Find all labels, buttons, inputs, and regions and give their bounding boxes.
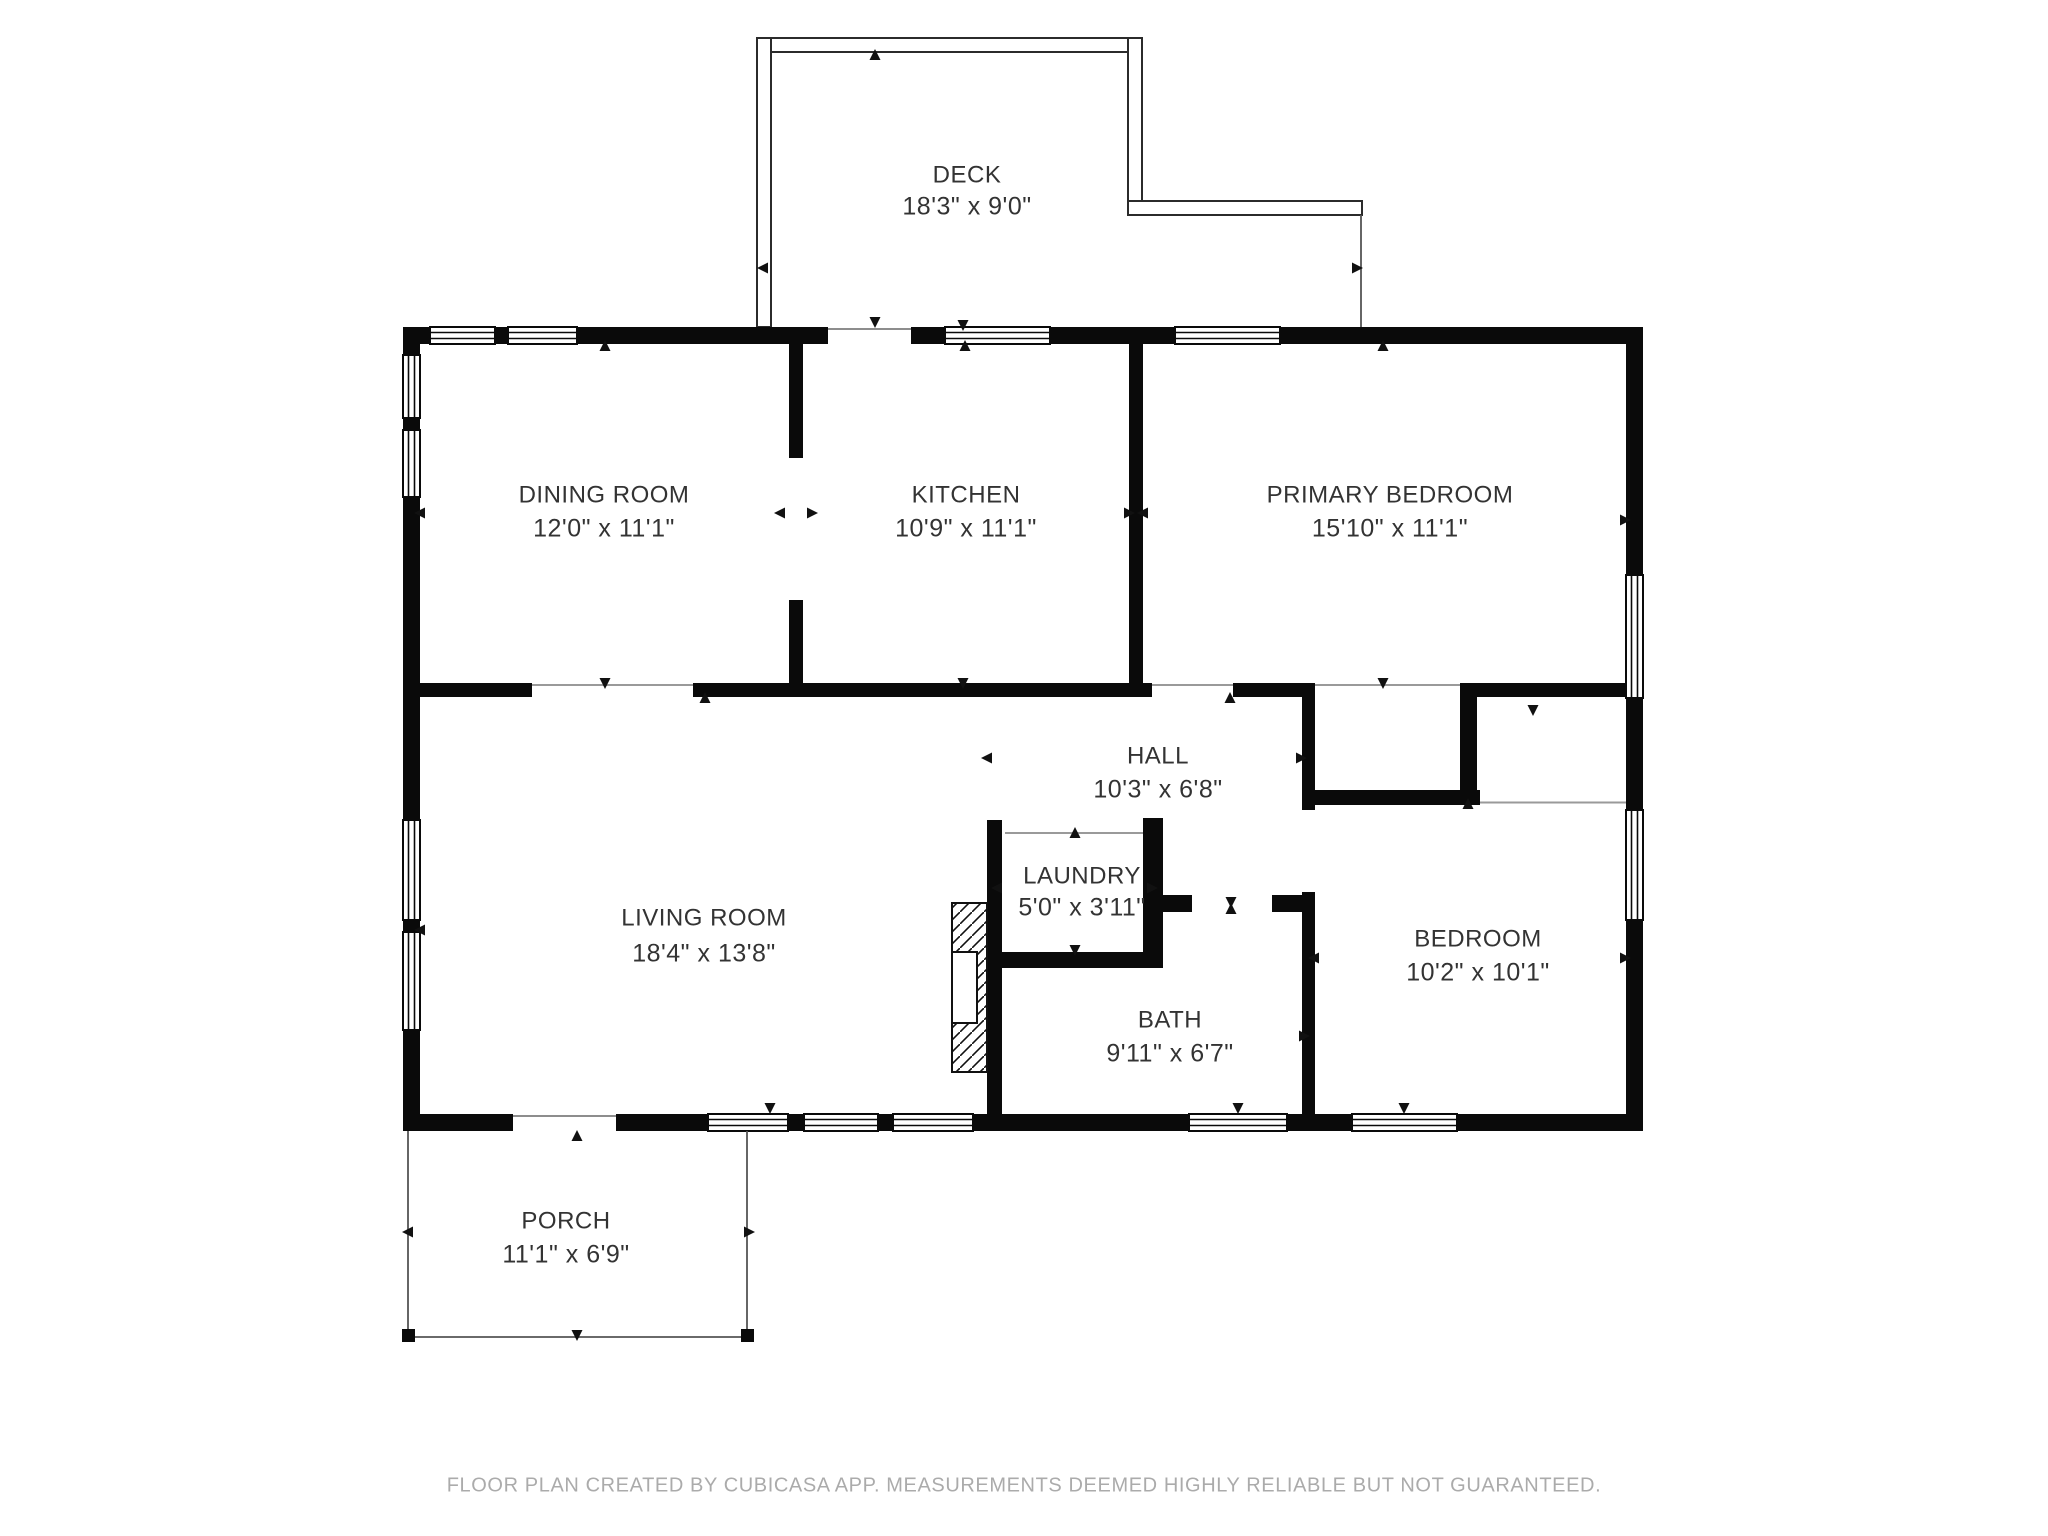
wall-closet-bottom bbox=[1302, 790, 1480, 805]
footer-disclaimer: FLOOR PLAN CREATED BY CUBICASA APP. MEAS… bbox=[447, 1474, 1602, 1496]
window-primary-top bbox=[1175, 327, 1280, 344]
window-bedroom-right bbox=[1626, 810, 1643, 920]
room-dims-living: 18'4" x 13'8" bbox=[632, 940, 776, 968]
room-label-living: LIVING ROOM bbox=[621, 904, 787, 931]
floor-plan-drawing: DECK 18'3" x 9'0" DINING ROOM 12'0" x 11… bbox=[0, 0, 2048, 1536]
room-label-dining: DINING ROOM bbox=[519, 481, 690, 508]
wall-row-kitchen bbox=[693, 683, 1152, 697]
chimney bbox=[952, 903, 987, 1072]
wall-kitchen-primary bbox=[1129, 344, 1143, 697]
room-dims-laundry: 5'0" x 3'11" bbox=[1018, 894, 1145, 922]
room-label-bedroom: BEDROOM bbox=[1414, 925, 1542, 952]
wall-row-closet bbox=[1460, 683, 1643, 697]
windows bbox=[403, 327, 1643, 1131]
room-dims-bedroom: 10'2" x 10'1" bbox=[1406, 959, 1550, 987]
room-dims-dining: 12'0" x 11'1" bbox=[533, 515, 675, 543]
wall-closet-divider bbox=[1460, 697, 1477, 790]
room-label-porch: PORCH bbox=[521, 1207, 610, 1234]
wall-dining-kitchen-upper bbox=[789, 344, 803, 458]
wall-hall-bath-stub-left bbox=[1163, 895, 1192, 912]
room-label-bath: BATH bbox=[1138, 1006, 1202, 1033]
wall-row-dining bbox=[420, 683, 532, 697]
room-label-hall: HALL bbox=[1127, 742, 1189, 769]
window-bath-bottom bbox=[1189, 1114, 1287, 1131]
window-primary-right bbox=[1626, 575, 1643, 698]
room-dims-hall: 10'3" x 6'8" bbox=[1093, 776, 1222, 804]
exterior-walls bbox=[403, 327, 1643, 1131]
wall-hall-bath-stub-right bbox=[1272, 895, 1302, 912]
room-label-kitchen: KITCHEN bbox=[912, 481, 1021, 508]
interior-walls bbox=[420, 344, 1643, 1114]
wall-exterior-right bbox=[1626, 327, 1643, 1131]
room-label-deck: DECK bbox=[933, 161, 1002, 188]
room-label-primary: PRIMARY BEDROOM bbox=[1267, 481, 1514, 508]
porch-outline bbox=[402, 1131, 754, 1342]
wall-dining-kitchen-lower bbox=[789, 600, 803, 683]
door-openings bbox=[513, 326, 911, 1132]
porch-post-right bbox=[741, 1329, 754, 1342]
deck-railing bbox=[757, 38, 1362, 327]
room-dims-porch: 11'1" x 6'9" bbox=[502, 1241, 629, 1269]
porch-post-left bbox=[402, 1329, 415, 1342]
window-bedroom-bottom bbox=[1352, 1114, 1457, 1131]
room-dims-primary: 15'10" x 11'1" bbox=[1312, 515, 1468, 543]
wall-row-hall-right bbox=[1233, 683, 1315, 697]
floor-plan-page: { "title": "Floor plan", "rooms": [ {"id… bbox=[0, 0, 2048, 1536]
window-kitchen-top bbox=[945, 327, 1050, 344]
room-dims-bath: 9'11" x 6'7" bbox=[1106, 1040, 1233, 1068]
room-dims-deck: 18'3" x 9'0" bbox=[902, 193, 1031, 221]
window-living-bottom bbox=[708, 1114, 973, 1131]
room-dims-kitchen: 10'9" x 11'1" bbox=[895, 515, 1037, 543]
wall-bath-bedroom bbox=[1302, 892, 1315, 1114]
room-label-laundry: LAUNDRY bbox=[1023, 862, 1141, 889]
